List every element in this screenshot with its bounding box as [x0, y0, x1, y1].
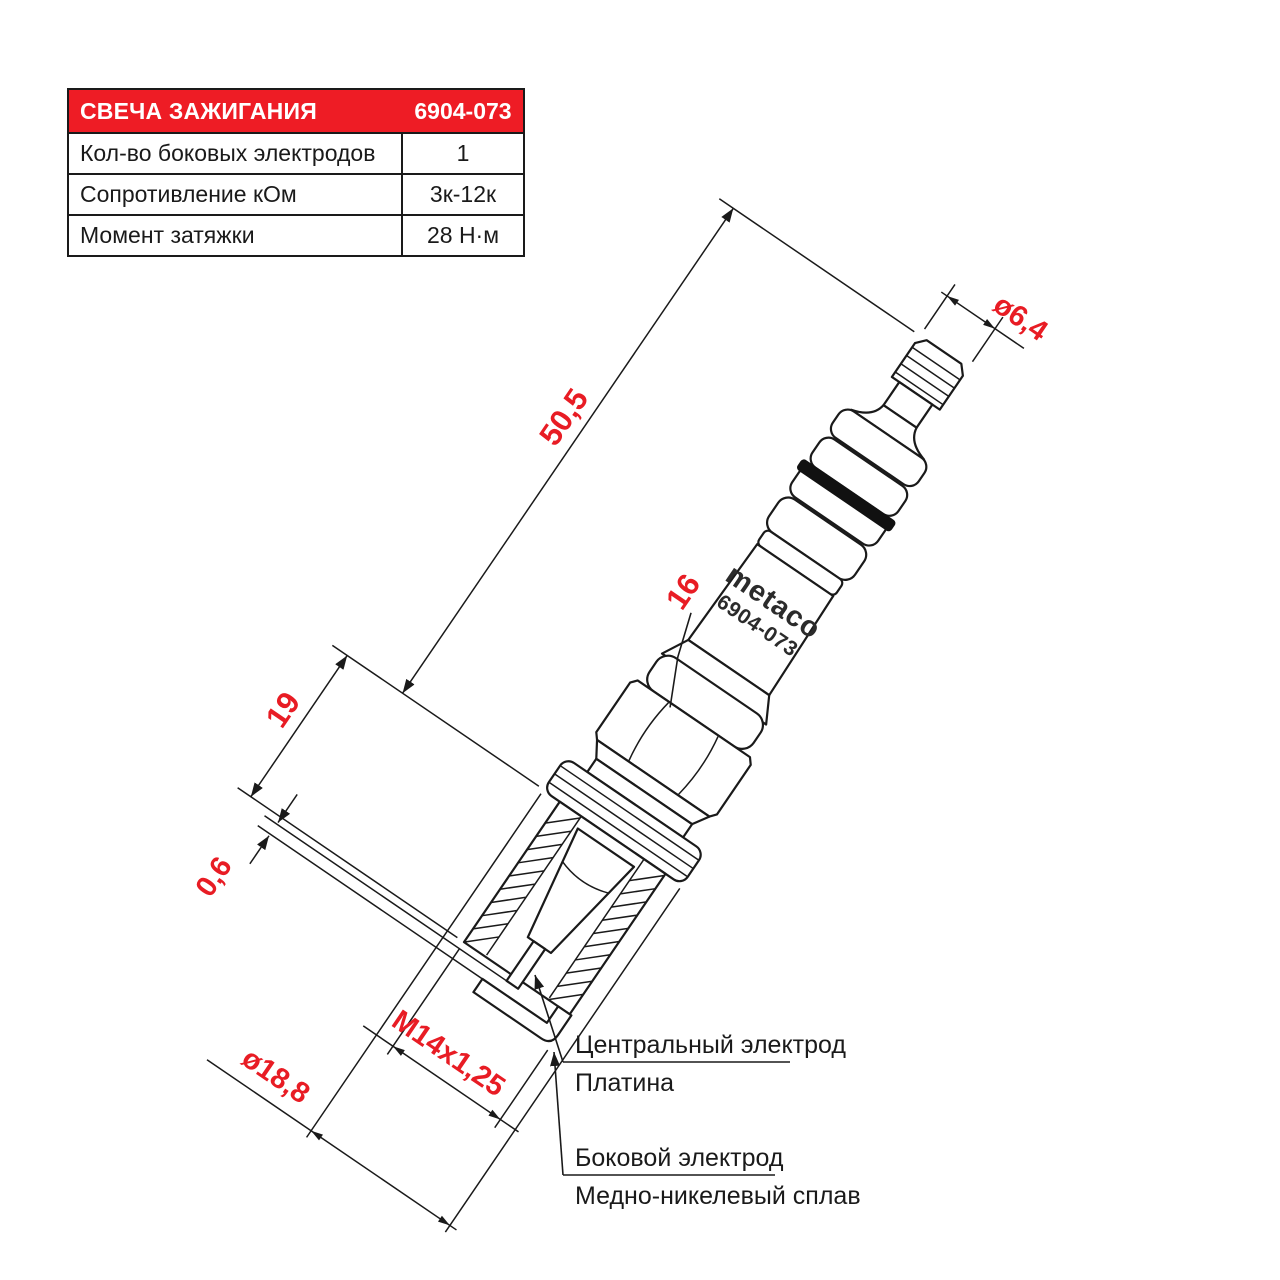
side-electrode-label: Боковой электрод [575, 1144, 784, 1172]
dim-6-4-label: ø6,4 [987, 289, 1053, 348]
spec-table: СВЕЧА ЗАЖИГАНИЯ 6904-073 Кол-во боковых … [67, 88, 525, 257]
row-value: 28 Н·м [401, 216, 523, 255]
page: metaco 6904-073 [0, 0, 1280, 1280]
spec-table-header: СВЕЧА ЗАЖИГАНИЯ 6904-073 [69, 90, 523, 132]
table-row: Момент затяжки 28 Н·м [69, 214, 523, 255]
row-label: Момент затяжки [69, 222, 401, 249]
central-electrode-material: Платина [575, 1069, 674, 1097]
part-number: 6904-073 [403, 98, 523, 125]
table-row: Кол-во боковых электродов 1 [69, 132, 523, 173]
row-value: 3к-12к [401, 175, 523, 214]
spec-table-title: СВЕЧА ЗАЖИГАНИЯ [69, 98, 403, 125]
dim-0-6-label: 0,6 [190, 851, 239, 902]
dim-50-5-label: 50,5 [532, 382, 595, 452]
dim-16-label: 16 [659, 568, 707, 616]
dim-19-label: 19 [259, 686, 307, 734]
row-label: Кол-во боковых электродов [69, 140, 401, 167]
row-value: 1 [401, 134, 523, 173]
side-electrode-material: Медно-никелевый сплав [575, 1182, 861, 1210]
central-electrode-label: Центральный электрод [575, 1031, 846, 1059]
row-label: Сопротивление кОм [69, 181, 401, 208]
table-row: Сопротивление кОм 3к-12к [69, 173, 523, 214]
dim-18-8-label: ø18,8 [236, 1042, 315, 1110]
